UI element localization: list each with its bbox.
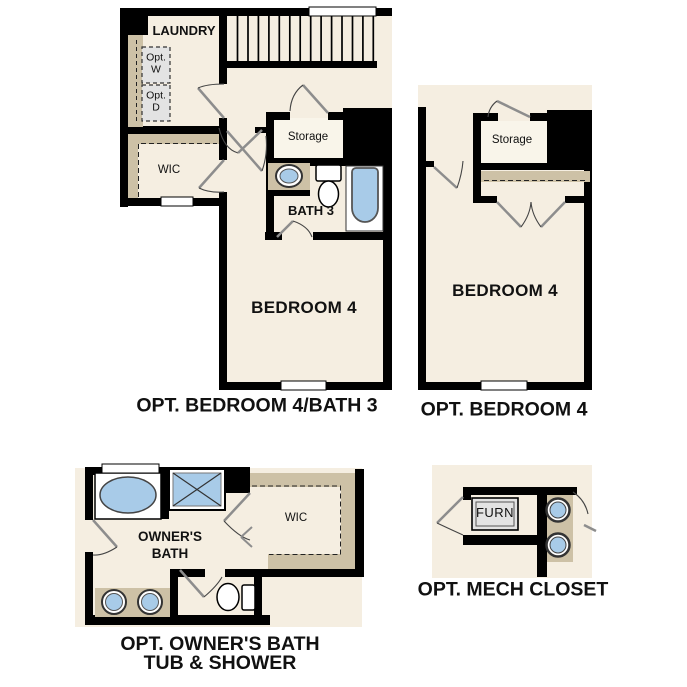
bedroom4-label-1: BEDROOM 4 xyxy=(251,299,357,317)
owners-bath-line1: OWNER'S xyxy=(138,528,202,545)
plan1-wic-shelf-left xyxy=(128,134,138,198)
caption-owners-bath-line2: TUB & SHOWER xyxy=(120,654,319,673)
vanity-sink-left-bowl xyxy=(106,594,123,611)
floorplan-sheet: LAUNDRY Opt. W Opt. D WIC Storage BATH 3… xyxy=(0,0,687,687)
plan1-laundry-closet xyxy=(128,35,143,127)
bath-window xyxy=(102,464,159,473)
bedroom4-window-2 xyxy=(481,381,527,390)
mech-unit-top xyxy=(550,537,566,553)
stair-opening xyxy=(309,7,376,16)
vanity-sink-right-bowl xyxy=(142,594,159,611)
bedroom4-window xyxy=(281,381,326,390)
bath3-label: BATH 3 xyxy=(288,204,334,218)
owners-toilet-bowl xyxy=(217,584,239,611)
storage-label-1: Storage xyxy=(288,131,328,143)
laundry-label: LAUNDRY xyxy=(152,24,215,38)
garden-tub xyxy=(100,477,156,513)
wic-window xyxy=(161,197,193,206)
caption-mech-closet: OPT. MECH CLOSET xyxy=(418,580,609,600)
plan3-wic-shelf-bottom xyxy=(268,554,355,569)
furn-label: FURN xyxy=(476,506,514,520)
opt-washer-label: Opt. W xyxy=(146,52,166,75)
water-heater-top xyxy=(550,502,566,518)
plan1-wic-shelf-top xyxy=(128,134,219,144)
caption-bedroom4: OPT. BEDROOM 4 xyxy=(421,400,588,420)
bath3-sink-bowl xyxy=(280,169,298,183)
owners-bath-line2: BATH xyxy=(138,545,202,562)
toilet-tank xyxy=(316,165,341,181)
opt-dryer-label: Opt. D xyxy=(146,90,166,113)
caption-owners-bath: OPT. OWNER'S BATH TUB & SHOWER xyxy=(120,635,319,673)
opt-washer-line1: Opt. xyxy=(146,52,166,64)
owners-toilet-tank xyxy=(242,585,255,610)
plan3-wic-shelf-top xyxy=(250,473,355,487)
bathtub xyxy=(352,168,378,222)
owners-bath-label: OWNER'S BATH xyxy=(138,528,202,562)
plan-bedroom4 xyxy=(418,85,592,390)
caption-bedroom4-bath3: OPT. BEDROOM 4/BATH 3 xyxy=(136,396,377,416)
opt-dryer-line1: Opt. xyxy=(146,90,166,102)
plan-mech-closet xyxy=(432,465,596,578)
wic-label-2: WIC xyxy=(285,512,307,524)
plan-owners-bath xyxy=(75,464,364,627)
bedroom4-label-2: BEDROOM 4 xyxy=(452,282,558,300)
storage-label-2: Storage xyxy=(492,134,532,146)
opt-dryer-line2: D xyxy=(146,102,166,114)
wic-label-1: WIC xyxy=(158,164,180,176)
opt-washer-line2: W xyxy=(146,64,166,76)
